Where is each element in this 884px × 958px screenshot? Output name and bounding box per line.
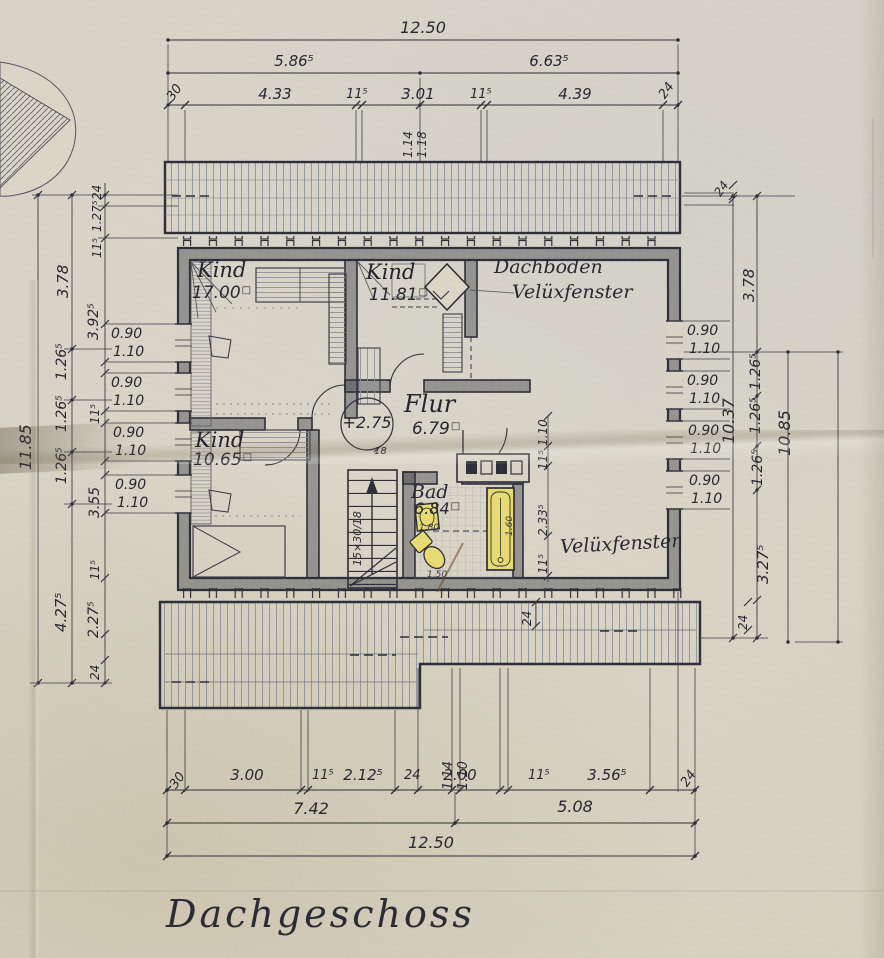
room-area-kind2: 11.81□ xyxy=(369,285,428,305)
room-label-kind3: Kind xyxy=(195,428,244,452)
bath-mark-b: 1.60 xyxy=(505,516,515,536)
dim-left-o1: 1.26⁵ xyxy=(54,343,70,380)
dim-left-w3a: 0.90 xyxy=(115,477,146,493)
dim-top-mid-1: 6.63⁵ xyxy=(420,52,678,70)
room-area-kind3: 10.65□ xyxy=(193,450,252,470)
room-area-bad: 6.84□ xyxy=(414,499,460,518)
dim-top-d3: 3.01 xyxy=(368,85,468,103)
dim-top-d5: 4.39 xyxy=(500,85,650,103)
dim-top-d4: 11⁵ xyxy=(470,87,492,102)
blueprint-page: 12.50 5.86⁵ 6.63⁵ 30 4.33 11⁵ 3.01 11⁵ 4… xyxy=(0,0,884,958)
dim-right-o3: 1.26⁵ xyxy=(750,449,766,486)
dim-right-w1a: 0.90 xyxy=(687,373,718,389)
dim-bot-total: 12.50 xyxy=(167,833,695,852)
dim-left-i6: 11⁵ xyxy=(88,560,102,580)
dim-left-i5: 3.55 xyxy=(87,487,103,518)
dim-left-w0a: 0.90 xyxy=(111,326,142,342)
dim-inner-3: 11⁵ xyxy=(536,554,550,574)
top-roof-band xyxy=(165,118,873,258)
drawing-title: Dachgeschoss xyxy=(166,892,475,936)
dim-inner-0: 1.10 xyxy=(536,419,550,446)
dim-inner-1: 11⁵ xyxy=(536,450,550,470)
dim-bot-v1: 1.10 xyxy=(456,761,471,790)
dim-bot-mid-1: 5.08 xyxy=(455,797,695,816)
dim-left-i7: 2.27⁵ xyxy=(86,601,102,638)
dim-bot-d4: 24 xyxy=(404,768,421,783)
dim-top-v1: 1.18 xyxy=(415,131,429,158)
dim-top-mid-0: 5.86⁵ xyxy=(168,52,420,70)
dim-left-w2a: 0.90 xyxy=(113,425,144,441)
room-area-kind1: 17.00□ xyxy=(192,283,251,303)
dim-right-total-1: 10.85 xyxy=(775,410,794,456)
room-label-flur: Flur xyxy=(404,390,455,418)
dim-bot-d7: 3.56⁵ xyxy=(552,766,662,784)
dim-top-d2: 11⁵ xyxy=(346,87,368,102)
room-label-kind1: Kind xyxy=(197,258,246,282)
dim-left-o0: 3.78 xyxy=(54,265,72,298)
dim-left-i4: 11⁵ xyxy=(88,404,102,424)
dim-bot-d3: 2.12⁵ xyxy=(328,766,398,784)
dim-bot-d1: 3.00 xyxy=(192,766,302,784)
dim-right-total-0: 10.37 xyxy=(719,398,738,444)
dim-bot-v0: 1.14 xyxy=(441,761,456,790)
room-label-dachboden: Dachboden xyxy=(494,256,603,278)
dim-left-i1: 1.27⁵ xyxy=(90,200,104,232)
dim-top-d1: 4.33 xyxy=(210,85,340,103)
stairs-note: 15×30/18 xyxy=(351,511,364,566)
dim-right-o0: 3.78 xyxy=(740,269,758,302)
adjacent-sheet-artifact xyxy=(0,62,76,196)
dim-left-i0: 24 xyxy=(90,185,104,200)
dim-left-i8: 24 xyxy=(88,665,102,680)
dim-right-w3a: 0.90 xyxy=(689,473,720,489)
dim-left-o4: 4.27⁵ xyxy=(52,593,70,632)
dim-left-w3b: 1.10 xyxy=(117,495,148,511)
dim-top-total: 12.50 xyxy=(168,18,678,37)
dim-right-w0a: 0.90 xyxy=(687,323,718,339)
dim-right-w2a: 0.90 xyxy=(688,423,719,439)
dim-bot-d6: 11⁵ xyxy=(528,768,550,783)
dim-right-w3b: 1.10 xyxy=(691,491,722,507)
dim-inner-eaves: 24 xyxy=(520,611,534,626)
room-area-flur: 6.79□ xyxy=(412,419,460,439)
dim-right-w1b: 1.10 xyxy=(689,391,720,407)
dim-right-o4: 3.27⁵ xyxy=(754,545,772,584)
dim-inner-2: 2.33⁵ xyxy=(536,504,550,536)
dim-right-o1: 1.26⁵ xyxy=(748,353,764,390)
level-marker-note: 18 xyxy=(374,446,387,457)
dim-right-w0b: 1.10 xyxy=(689,341,720,357)
level-marker-value: +2.75 xyxy=(337,413,397,432)
dim-left-w1b: 1.10 xyxy=(113,393,144,409)
bath-mark-a: 1.80 xyxy=(419,523,439,533)
dim-left-w2b: 1.10 xyxy=(115,443,146,459)
label-velux-top: Velüxfenster xyxy=(512,281,632,303)
dim-right-bottom: 24 xyxy=(736,615,750,630)
dim-left-w1a: 0.90 xyxy=(111,375,142,391)
dim-left-i2: 11⁵ xyxy=(90,238,104,258)
dim-left-o3: 1.26⁵ xyxy=(54,447,70,484)
bath-mark-c: 1.50 xyxy=(427,570,447,580)
dim-bot-mid-0: 7.42 xyxy=(167,799,455,818)
dim-right-w2b: 1.10 xyxy=(690,441,721,457)
dim-left-w0b: 1.10 xyxy=(113,344,144,360)
dim-top-v0: 1.14 xyxy=(401,131,415,158)
dim-left-i3: 3.92⁵ xyxy=(86,303,102,340)
dim-left-o2: 1.26⁵ xyxy=(54,395,70,432)
room-label-kind2: Kind xyxy=(366,260,415,284)
bottom-roof-band xyxy=(160,588,700,708)
washstand xyxy=(457,454,529,482)
dim-left-total: 11.85 xyxy=(16,424,35,470)
dim-right-o2: 1.26⁵ xyxy=(748,397,764,434)
